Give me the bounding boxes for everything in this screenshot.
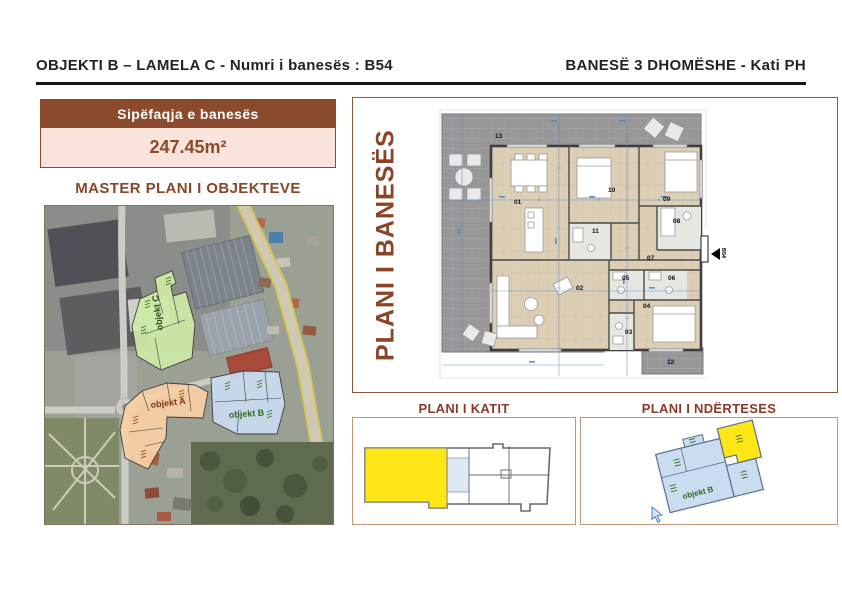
header-divider (36, 82, 806, 85)
room-label: 03 (625, 329, 633, 336)
room-label: 08 (673, 218, 681, 225)
apartment-plan-panel: PLANI I BANESËS (352, 97, 838, 393)
room-label: 11 (592, 228, 599, 235)
map-park (45, 418, 119, 524)
floor-outline (353, 418, 575, 524)
map-overlay-objekt-b: objekt B (211, 371, 285, 434)
area-box-label: Sipëfaqja e banesës (41, 100, 335, 128)
room-label: 01 (514, 199, 522, 206)
building-outline: objekt B (581, 418, 837, 524)
brochure-page: OBJEKTI B – LAMELA C - Numri i banesës :… (0, 0, 842, 597)
page-title-left: OBJEKTI B – LAMELA C - Numri i banesës :… (36, 57, 393, 74)
floor-plan-panel (352, 417, 576, 525)
core-section (447, 458, 469, 492)
entrance-door (701, 236, 708, 262)
mouse-cursor-icon (651, 506, 665, 524)
entrance-label: B54 (720, 248, 726, 259)
master-plan-title: MASTER PLANI I OBJEKTEVE (40, 180, 336, 197)
floor-plan-title: PLANI I KATIT (352, 401, 576, 416)
page-title-right: BANESË 3 DHOMËSHE - Kati PH (565, 57, 806, 74)
highlighted-unit (365, 448, 447, 508)
satellite-map: objekt C objekt A (45, 206, 333, 524)
apartment-plan-title: PLANI I BANESËS (357, 98, 415, 392)
room-label: 07 (647, 255, 655, 262)
room-label: 12 (667, 359, 675, 366)
master-plan-map: objekt C objekt A (44, 205, 334, 525)
building-plan-panel: objekt B (580, 417, 838, 525)
room-label: 05 (622, 275, 630, 282)
room-label: 09 (663, 196, 671, 203)
entrance-marker: B54 (711, 248, 726, 260)
room-label: 06 (668, 275, 676, 282)
room-label: 04 (643, 303, 651, 310)
area-box: Sipëfaqja e banesës 247.45m² (40, 99, 336, 168)
building-plan-title: PLANI I NDËRTESES (580, 401, 838, 416)
apartment-floor-plan: 01 02 03 04 05 06 07 08 09 10 11 12 13 B… (439, 108, 731, 384)
room-label: 13 (495, 133, 503, 140)
area-box-value: 247.45m² (41, 128, 335, 167)
map-blue-roof (269, 232, 283, 243)
room-label: 02 (576, 285, 584, 292)
room-label: 10 (608, 187, 616, 194)
map-trees (191, 442, 333, 524)
